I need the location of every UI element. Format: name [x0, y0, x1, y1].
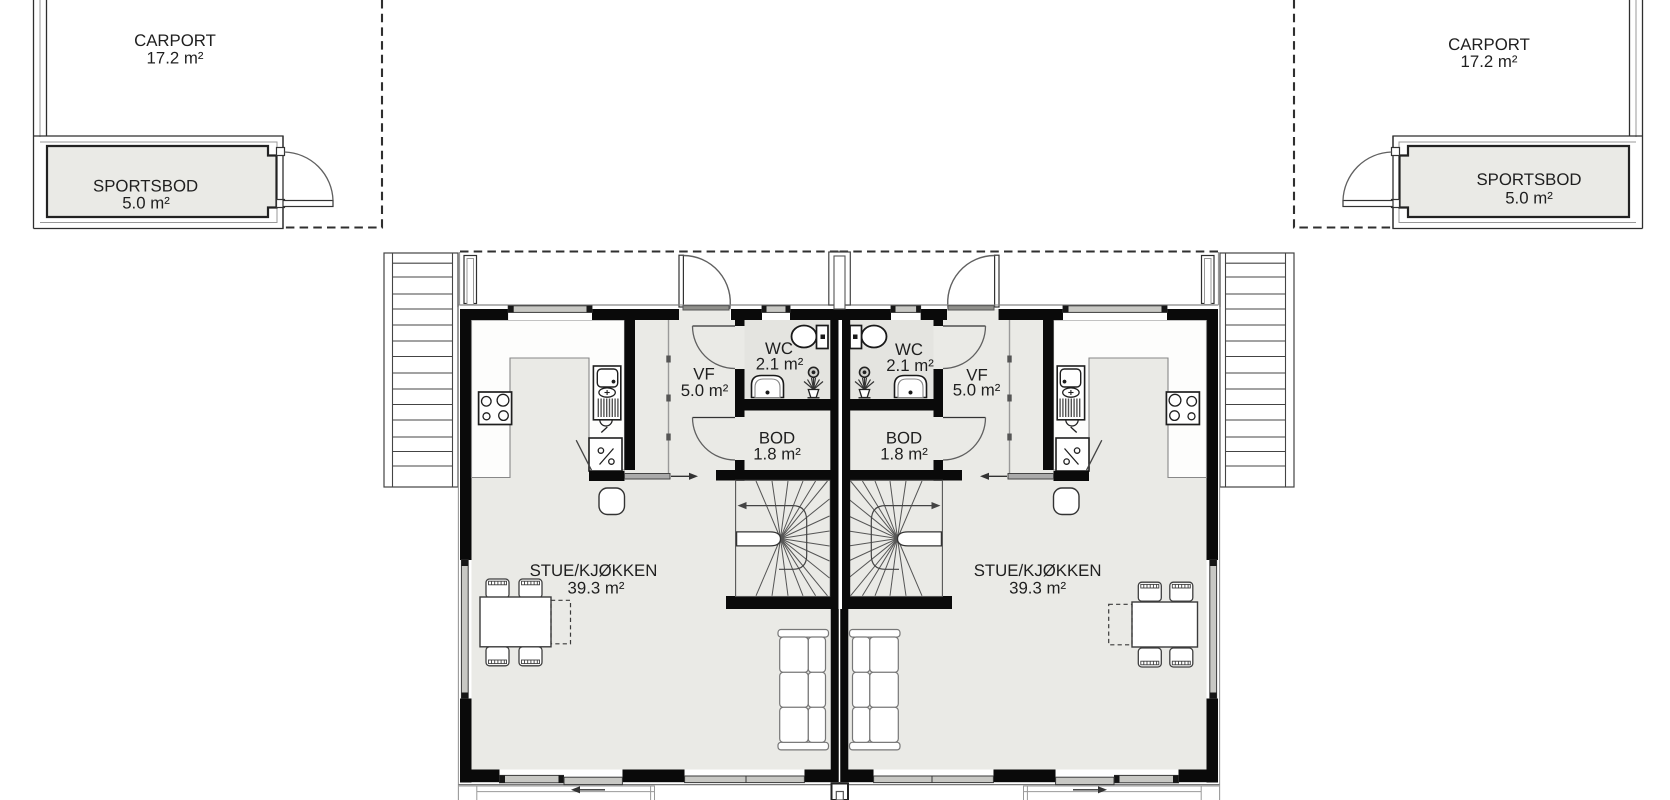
svg-text:SPORTSBOD: SPORTSBOD [1476, 170, 1581, 189]
svg-text:STUE/KJØKKEN: STUE/KJØKKEN [530, 561, 658, 580]
svg-text:39.3 m²: 39.3 m² [1009, 579, 1066, 598]
svg-text:CARPORT: CARPORT [134, 31, 216, 50]
svg-text:39.3 m²: 39.3 m² [568, 579, 625, 598]
svg-text:5.0 m²: 5.0 m² [122, 194, 170, 213]
svg-text:1.8 m²: 1.8 m² [753, 445, 801, 464]
svg-text:5.0 m²: 5.0 m² [953, 381, 1001, 400]
svg-text:1.8 m²: 1.8 m² [880, 445, 928, 464]
svg-text:STUE/KJØKKEN: STUE/KJØKKEN [974, 561, 1102, 580]
svg-text:2.1 m²: 2.1 m² [756, 355, 804, 374]
svg-text:2.1 m²: 2.1 m² [886, 356, 934, 375]
svg-text:5.0 m²: 5.0 m² [681, 381, 729, 400]
svg-text:17.2 m²: 17.2 m² [1461, 52, 1518, 71]
svg-text:5.0 m²: 5.0 m² [1505, 189, 1553, 208]
svg-text:17.2 m²: 17.2 m² [147, 49, 204, 68]
